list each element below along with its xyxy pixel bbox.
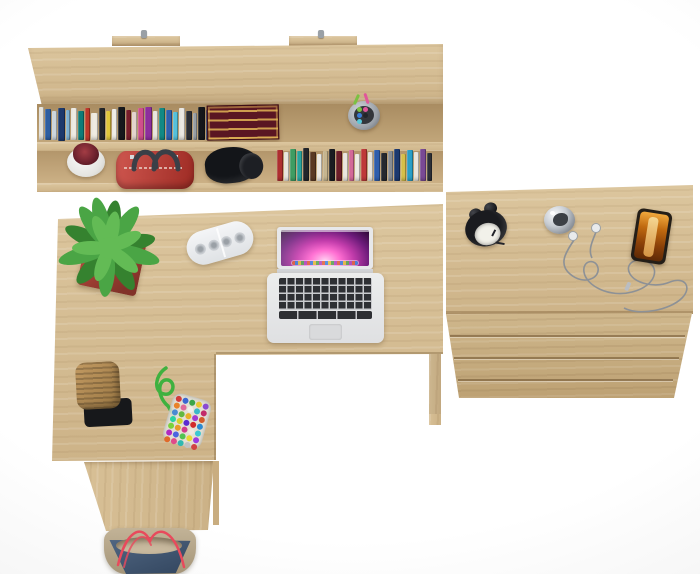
book-spine	[323, 151, 328, 181]
book-spine	[414, 152, 419, 181]
book-spine	[407, 150, 413, 181]
book-spine	[336, 151, 342, 181]
book-spine	[388, 151, 393, 181]
book-spine	[39, 107, 44, 140]
red-handbag	[116, 143, 194, 189]
book-spine	[45, 109, 51, 140]
book-spine	[52, 111, 57, 140]
book-spine	[361, 149, 367, 181]
power-socket-icon	[233, 231, 247, 245]
laptop-menubar	[281, 230, 369, 232]
book-spine	[317, 154, 322, 181]
laptop-screen	[277, 227, 373, 269]
green-spiky-plant	[56, 196, 162, 300]
earbud-remote-icon	[624, 282, 631, 292]
earbuds-with-cable	[540, 212, 700, 330]
tote-bag-straps	[104, 521, 196, 573]
pen-tip	[357, 119, 362, 124]
desk-right-leg-foot	[429, 414, 441, 425]
book-spine	[198, 107, 205, 140]
pen-tip	[363, 107, 368, 112]
book-spine	[368, 152, 373, 181]
book-spine	[186, 111, 192, 140]
drawer-gap-line	[458, 379, 673, 381]
laptop-trackpad	[309, 324, 342, 340]
earbud-icon	[592, 224, 601, 233]
book-spine	[138, 108, 144, 140]
earbud-icon	[569, 232, 578, 241]
pen-tip	[357, 113, 362, 118]
pen-tip	[357, 107, 362, 112]
book-spine	[381, 153, 387, 181]
alarm-clock-face	[472, 220, 503, 248]
smartphone-screen-glow	[643, 216, 659, 257]
book-spine	[394, 149, 400, 181]
clock-hour-hand	[491, 229, 496, 236]
book-spine	[58, 108, 65, 141]
book-spine	[166, 110, 172, 140]
laptop-base	[267, 273, 384, 343]
book-spine	[106, 111, 111, 140]
white-flower-pot	[67, 147, 105, 177]
book-spine	[343, 153, 348, 181]
book-spine	[78, 111, 84, 140]
drawer-gap-line	[450, 335, 685, 337]
book-spine	[290, 149, 296, 181]
book-spine	[374, 150, 380, 181]
book-spine	[153, 111, 158, 140]
book-spine	[277, 150, 283, 181]
book-spine	[349, 150, 354, 181]
book-spine	[284, 152, 289, 181]
shelf-mount-bracket-right	[289, 36, 357, 46]
laptop-dock	[292, 261, 359, 265]
book-spine	[66, 110, 71, 140]
pen-tip	[363, 113, 368, 118]
book-spine	[159, 108, 165, 140]
book-spine	[145, 107, 152, 140]
woven-basket	[75, 361, 121, 410]
ornate-antique-book	[207, 104, 280, 140]
book-spine	[193, 113, 198, 140]
wall-shelf-top-panel	[28, 44, 443, 106]
clock-minute-hand	[495, 242, 504, 246]
book-spine	[91, 113, 98, 140]
book-spine	[85, 108, 90, 141]
book-spine	[173, 112, 178, 140]
laptop-spacebar-row	[279, 311, 372, 319]
book-spine	[112, 109, 117, 140]
laptop-keyboard	[279, 278, 372, 310]
book-spine	[179, 108, 185, 140]
tote-bag	[104, 521, 196, 574]
red-succulent-plant	[73, 143, 99, 165]
book-spine	[303, 148, 309, 181]
desk-return-edge	[214, 354, 216, 460]
book-spine	[132, 112, 137, 140]
mount-pin-icon	[318, 30, 324, 38]
desk-return-side-edge	[213, 461, 219, 525]
desk-right-leg-panel	[429, 354, 441, 416]
book-spine	[420, 149, 426, 181]
drawer-gap-line	[454, 357, 679, 359]
book-spine	[99, 108, 105, 140]
book-spine	[126, 110, 132, 140]
book-spine	[71, 108, 77, 140]
book-spine	[427, 153, 432, 181]
pencil-cup-opening	[354, 106, 374, 124]
power-socket-icon	[194, 242, 208, 256]
desk-front-edge	[216, 352, 443, 354]
book-row-lower-shelf	[277, 147, 433, 185]
book-row-top-shelf	[39, 105, 219, 144]
shelf-mount-bracket-left	[112, 36, 180, 46]
product-photo	[0, 0, 700, 574]
book-spine	[355, 154, 360, 181]
smartphone-screen	[634, 211, 670, 262]
book-spine	[329, 149, 335, 181]
book-spine	[118, 107, 125, 140]
book-spine	[401, 154, 406, 181]
mount-pin-icon	[141, 30, 147, 38]
pencil-cup	[348, 101, 380, 130]
book-spine	[297, 151, 302, 181]
handbag-handles	[116, 143, 194, 189]
book-spine	[310, 152, 316, 181]
laptop	[267, 227, 384, 343]
laptop-wallpaper	[281, 230, 369, 266]
